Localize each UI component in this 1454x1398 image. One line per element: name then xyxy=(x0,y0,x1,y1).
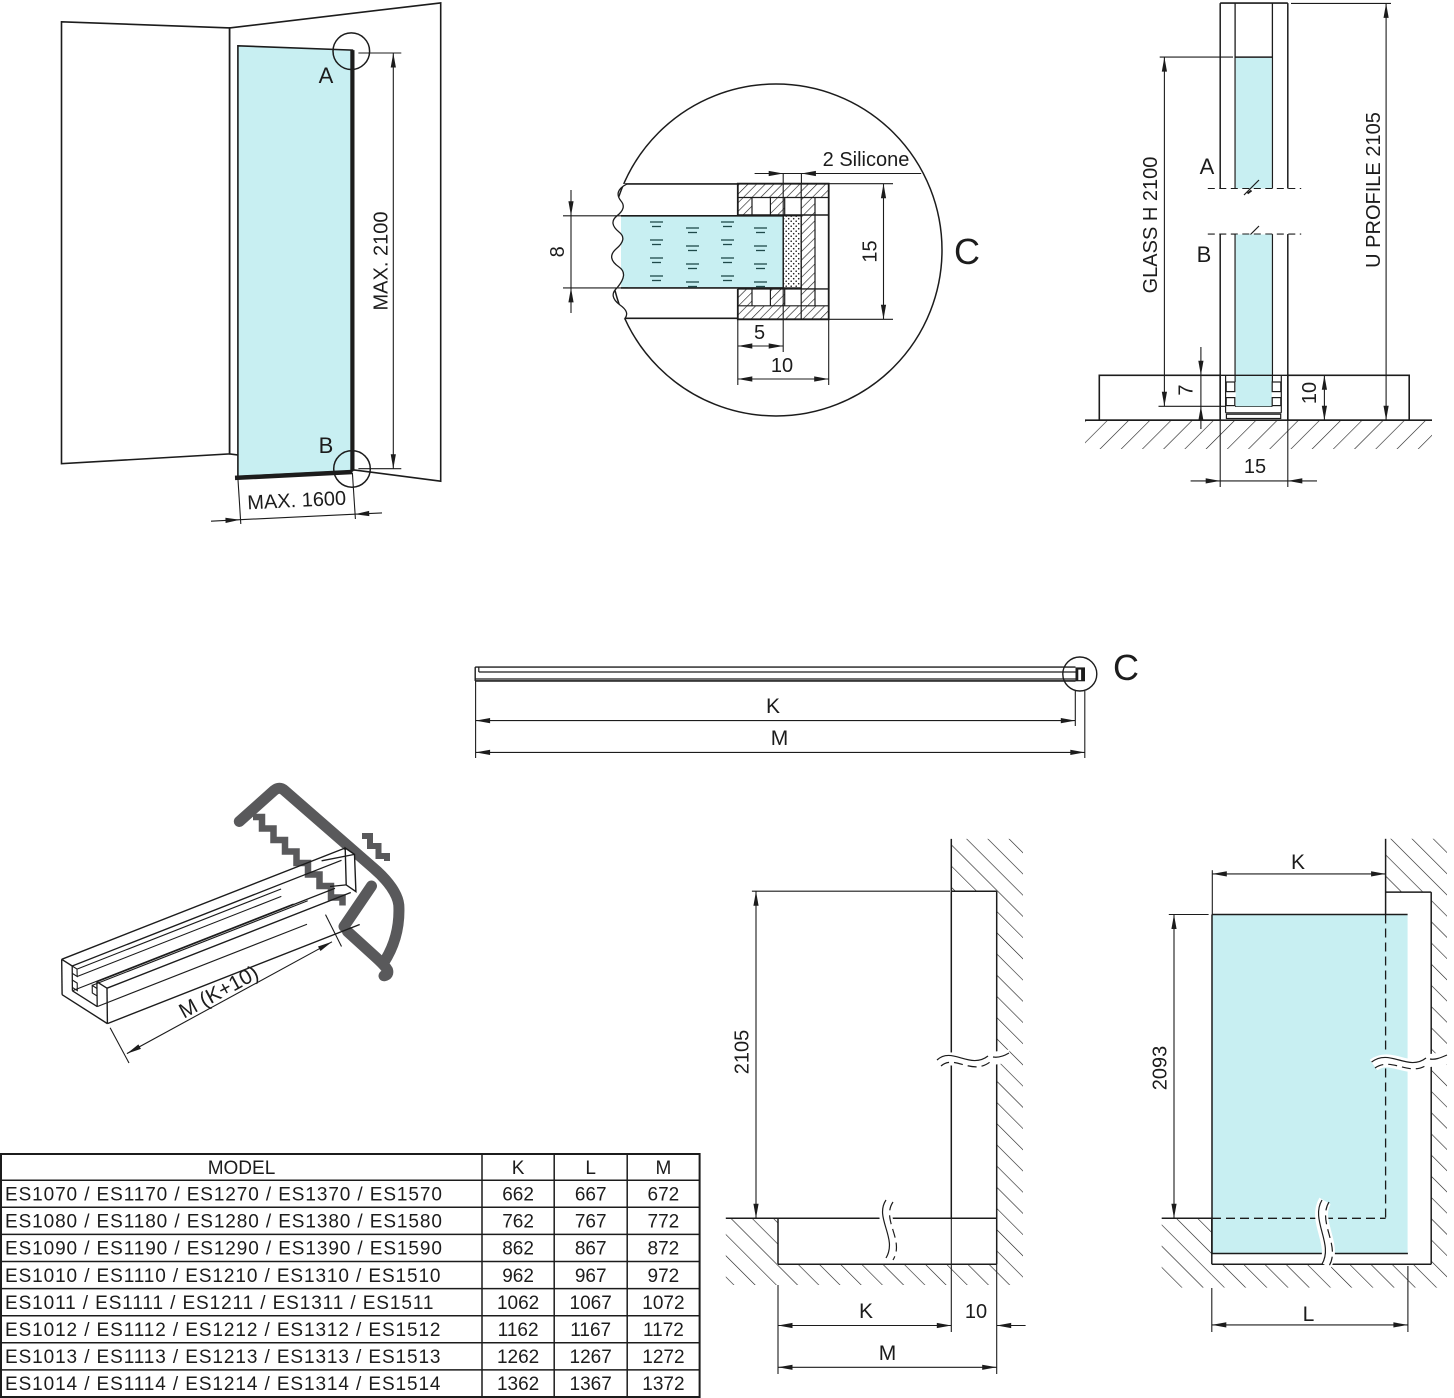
svg-text:10: 10 xyxy=(771,355,793,377)
svg-text:7: 7 xyxy=(1176,384,1198,395)
svg-text:C: C xyxy=(954,231,980,272)
svg-text:662: 662 xyxy=(502,1185,534,1206)
svg-text:ES1012 / ES1112 / ES1212 / ES1: ES1012 / ES1112 / ES1212 / ES1312 / ES15… xyxy=(5,1320,441,1341)
svg-text:ES1011 / ES1111 / ES1211 / ES1: ES1011 / ES1111 / ES1211 / ES1311 / ES15… xyxy=(5,1293,434,1314)
svg-text:2093: 2093 xyxy=(1150,1046,1172,1091)
svg-text:1167: 1167 xyxy=(570,1320,611,1341)
svg-text:ES1070 / ES1170 / ES1270 / ES1: ES1070 / ES1170 / ES1270 / ES1370 / ES15… xyxy=(5,1185,443,1206)
svg-text:1072: 1072 xyxy=(642,1293,684,1314)
svg-text:K: K xyxy=(1291,851,1305,874)
svg-text:A: A xyxy=(1200,154,1215,179)
svg-text:867: 867 xyxy=(575,1239,607,1260)
svg-text:15: 15 xyxy=(860,240,882,262)
svg-text:10: 10 xyxy=(965,1301,987,1323)
svg-text:762: 762 xyxy=(502,1212,534,1233)
svg-text:ES1010 / ES1110 / ES1210 / ES1: ES1010 / ES1110 / ES1210 / ES1310 / ES15… xyxy=(5,1266,441,1287)
svg-text:U PROFILE 2105: U PROFILE 2105 xyxy=(1363,112,1385,268)
svg-text:1162: 1162 xyxy=(498,1320,539,1341)
svg-text:M: M xyxy=(655,1158,671,1179)
svg-text:1267: 1267 xyxy=(570,1347,612,1368)
svg-text:B: B xyxy=(1197,242,1212,267)
svg-text:5: 5 xyxy=(754,322,765,344)
svg-text:M: M xyxy=(771,727,789,750)
svg-text:A: A xyxy=(319,63,334,88)
svg-text:B: B xyxy=(319,433,334,458)
svg-text:M: M xyxy=(879,1342,897,1365)
svg-text:1067: 1067 xyxy=(570,1293,612,1314)
svg-text:767: 767 xyxy=(575,1212,607,1233)
svg-text:MAX. 2100: MAX. 2100 xyxy=(371,212,393,311)
svg-text:L: L xyxy=(1303,1303,1315,1326)
svg-text:862: 862 xyxy=(502,1239,534,1260)
svg-text:K: K xyxy=(859,1300,873,1323)
svg-text:ES1080 / ES1180 / ES1280 / ES1: ES1080 / ES1180 / ES1280 / ES1380 / ES15… xyxy=(5,1212,443,1233)
svg-text:1172: 1172 xyxy=(643,1320,684,1341)
svg-text:967: 967 xyxy=(575,1266,607,1287)
svg-text:2105: 2105 xyxy=(732,1030,754,1075)
svg-text:L: L xyxy=(585,1158,596,1179)
svg-text:K: K xyxy=(512,1158,525,1179)
svg-text:972: 972 xyxy=(648,1266,680,1287)
svg-text:1262: 1262 xyxy=(497,1347,539,1368)
svg-text:GLASS H 2100: GLASS H 2100 xyxy=(1140,157,1162,294)
svg-text:MODEL: MODEL xyxy=(208,1158,276,1179)
svg-text:ES1014 / ES1114 / ES1214 / ES1: ES1014 / ES1114 / ES1214 / ES1314 / ES15… xyxy=(5,1374,441,1395)
svg-text:1367: 1367 xyxy=(570,1374,612,1395)
svg-text:C: C xyxy=(1113,647,1139,688)
svg-text:ES1013 / ES1113 / ES1213 / ES1: ES1013 / ES1113 / ES1213 / ES1313 / ES15… xyxy=(5,1347,441,1368)
svg-text:872: 872 xyxy=(648,1239,680,1260)
svg-text:K: K xyxy=(766,695,780,718)
svg-text:962: 962 xyxy=(502,1266,534,1287)
svg-text:667: 667 xyxy=(575,1185,607,1206)
svg-text:1272: 1272 xyxy=(642,1347,684,1368)
svg-text:8: 8 xyxy=(547,246,569,257)
svg-text:672: 672 xyxy=(648,1185,680,1206)
svg-text:1362: 1362 xyxy=(497,1374,539,1395)
svg-text:2 Silicone: 2 Silicone xyxy=(823,149,910,171)
svg-text:15: 15 xyxy=(1244,456,1266,478)
svg-text:10: 10 xyxy=(1299,382,1321,404)
svg-text:772: 772 xyxy=(648,1212,680,1233)
svg-text:1062: 1062 xyxy=(497,1293,539,1314)
svg-text:ES1090 / ES1190 / ES1290 / ES1: ES1090 / ES1190 / ES1290 / ES1390 / ES15… xyxy=(5,1239,443,1260)
svg-text:1372: 1372 xyxy=(642,1374,684,1395)
